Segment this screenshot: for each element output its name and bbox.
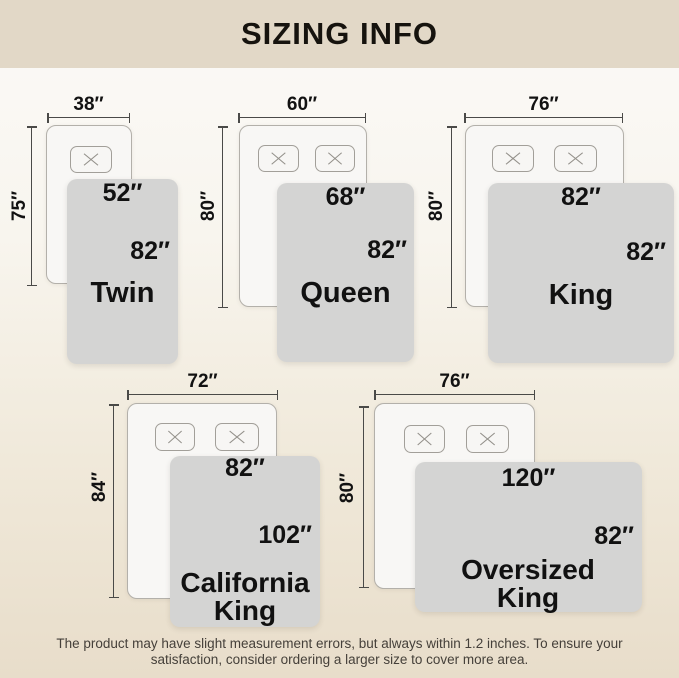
bed-length-label: 80″: [338, 464, 358, 512]
pillow: [70, 146, 112, 173]
pillow: [215, 423, 259, 451]
blanket-length-label: 82″: [415, 523, 634, 549]
bed-length-label: 80″: [427, 182, 447, 230]
pillow-x-icon: [493, 146, 533, 171]
sizing-info-page: SIZING INFO 38″ 75″ 52″ 82″ Twin 60″ 80″…: [0, 0, 679, 678]
header-bar: SIZING INFO: [0, 0, 679, 68]
pillow-x-icon: [259, 146, 298, 171]
size-name: Oversized King: [448, 556, 608, 612]
bed-width-dim-line: [128, 394, 277, 395]
blanket-width-label: 120″: [415, 465, 642, 491]
bed-width-label: 60″: [239, 95, 365, 115]
pillow: [492, 145, 534, 172]
bed-length-label: 75″: [10, 182, 30, 230]
bed-width-label: 76″: [465, 95, 622, 115]
pillow: [404, 425, 445, 453]
blanket-width-label: 82″: [170, 455, 320, 481]
size-name: King: [488, 280, 674, 310]
diagram-king: 76″ 80″ 82″ 82″ King: [430, 95, 679, 376]
bed-width-label: 76″: [375, 372, 534, 392]
bed-width-dim-line: [375, 394, 534, 395]
pillow-x-icon: [467, 426, 508, 452]
diagram-oversized-king: 76″ 80″ 120″ 82″ Oversized King: [340, 372, 652, 630]
blanket-width-label: 68″: [277, 184, 414, 210]
pillow-x-icon: [405, 426, 444, 452]
bed-width-dim-line: [239, 117, 365, 118]
pillow-x-icon: [555, 146, 596, 171]
pillow-x-icon: [156, 424, 194, 450]
size-name: California King: [165, 569, 325, 625]
bed-length-dim-line: [222, 127, 223, 307]
size-name: Queen: [277, 278, 414, 308]
footer: The product may have slight measurement …: [0, 636, 679, 667]
bed-length-dim-line: [31, 127, 32, 285]
pillow: [554, 145, 597, 172]
bed-width-label: 72″: [128, 372, 277, 392]
bed-width-label: 38″: [48, 95, 129, 115]
bed-length-dim-line: [113, 405, 114, 597]
size-name: Twin: [67, 278, 178, 308]
pillow-x-icon: [216, 424, 258, 450]
blanket-width-label: 82″: [488, 184, 674, 210]
blanket-length-label: 102″: [170, 522, 312, 548]
diagram-twin: 38″ 75″ 52″ 82″ Twin: [10, 95, 222, 376]
pillow: [258, 145, 299, 172]
blanket-length-label: 82″: [277, 237, 407, 263]
disclaimer-text: The product may have slight measurement …: [40, 636, 640, 667]
bed-length-dim-line: [363, 407, 364, 587]
bed-width-dim-line: [48, 117, 129, 118]
pillow: [155, 423, 195, 451]
page-title: SIZING INFO: [241, 16, 438, 52]
pillow-x-icon: [71, 147, 111, 172]
diagram-california-king: 72″ 84″ 82″ 102″ California King: [85, 372, 335, 630]
bed-width-dim-line: [465, 117, 622, 118]
pillow: [315, 145, 355, 172]
bed-length-dim-line: [451, 127, 452, 307]
blanket-length-label: 82″: [67, 238, 170, 264]
pillow-x-icon: [316, 146, 354, 171]
pillow: [466, 425, 509, 453]
blanket-length-label: 82″: [488, 239, 666, 265]
blanket-width-label: 52″: [67, 180, 178, 206]
bed-length-label: 80″: [199, 182, 219, 230]
diagram-queen: 60″ 80″ 68″ 82″ Queen: [200, 95, 440, 376]
bed-length-label: 84″: [90, 463, 110, 511]
